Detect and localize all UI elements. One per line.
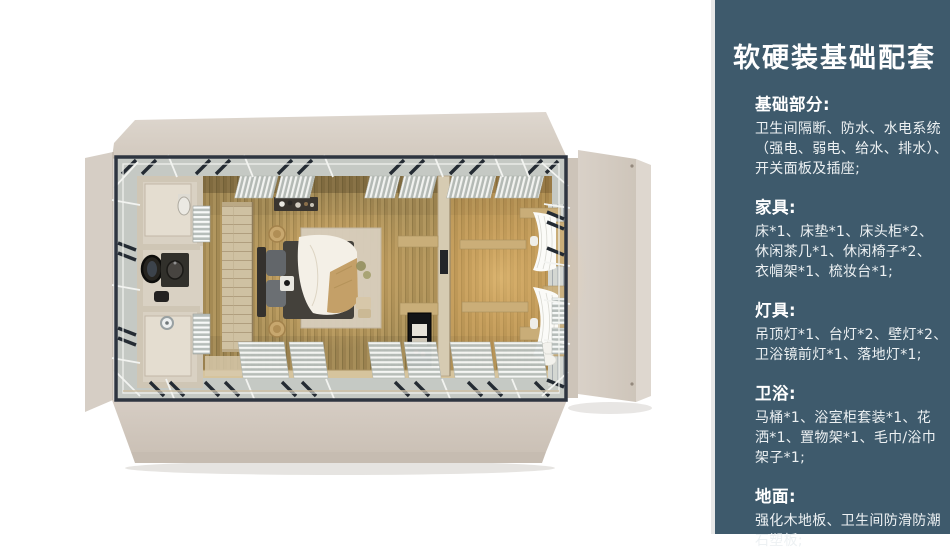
shelf (398, 236, 438, 247)
towel-rack-top (193, 206, 210, 242)
toilet (178, 197, 190, 215)
partition-wall (438, 176, 450, 376)
right-panel-side (636, 159, 651, 402)
wood-ledge (460, 240, 526, 249)
ground-shadow (125, 461, 555, 475)
throw-pillow (358, 309, 371, 318)
section-body: 强化木地板、卫生间防滑防潮 石塑板; (755, 511, 940, 551)
left-panel (85, 152, 113, 412)
ground-shadow-right (568, 402, 652, 414)
section-lighting: 灯具: 吊顶灯*1、台灯*2、壁灯*2、 卫浴镜前灯*1、落地灯*1; (755, 297, 940, 365)
section-flooring: 地面: 强化木地板、卫生间防滑防潮 石塑板; (755, 483, 940, 551)
section-sanitary: 卫浴: 马桶*1、浴室柜套装*1、花 洒*1、置物架*1、毛巾/浴巾 架子*1; (755, 380, 940, 468)
sidebar-title: 软硬装基础配套 (729, 36, 940, 75)
pillow (266, 250, 286, 276)
section-body: 卫生间隔断、防水、水电系统 （强电、弱电、给水、排水）、 开关面板及插座; (755, 119, 940, 179)
section-body: 吊顶灯*1、台灯*2、壁灯*2、 卫浴镜前灯*1、落地灯*1; (755, 325, 940, 365)
section-heading: 地面: (755, 483, 940, 507)
bedside-shelf (274, 197, 318, 211)
bottom-panel (112, 400, 567, 452)
wall-mounted-item (440, 250, 448, 274)
wood-ledge (462, 302, 528, 312)
stool (154, 291, 169, 302)
throw-pillow (356, 297, 371, 309)
section-body: 马桶*1、浴室柜套装*1、花 洒*1、置物架*1、毛巾/浴巾 架子*1; (755, 408, 940, 468)
wardrobe-partition (222, 202, 253, 352)
section-body: 床*1、床垫*1、床头柜*2、 休闲茶几*1、休闲椅子*2、 衣帽架*1、梳妆台… (755, 222, 940, 282)
floor-mat (205, 356, 245, 376)
bottom-panel-edge (131, 452, 546, 463)
info-sidebar: 软硬装基础配套 基础部分: 卫生间隔断、防水、水电系统 （强电、弱电、给水、排水… (715, 0, 950, 534)
headboard (257, 247, 266, 317)
section-basics: 基础部分: 卫生间隔断、防水、水电系统 （强电、弱电、给水、排水）、 开关面板及… (755, 91, 940, 179)
towel-rack-bottom (193, 314, 210, 354)
section-heading: 灯具: (755, 297, 940, 321)
table-lamp (284, 280, 290, 286)
section-heading: 基础部分: (755, 91, 940, 115)
plant (356, 261, 366, 271)
section-heading: 家具: (755, 194, 940, 218)
slat-grilles-bottom (238, 342, 547, 378)
section-furniture: 家具: 床*1、床垫*1、床头柜*2、 休闲茶几*1、休闲椅子*2、 衣帽架*1… (755, 194, 940, 282)
slide: 软硬装基础配套 基础部分: 卫生间隔断、防水、水电系统 （强电、弱电、给水、排水… (0, 0, 950, 534)
section-heading: 卫浴: (755, 380, 940, 404)
